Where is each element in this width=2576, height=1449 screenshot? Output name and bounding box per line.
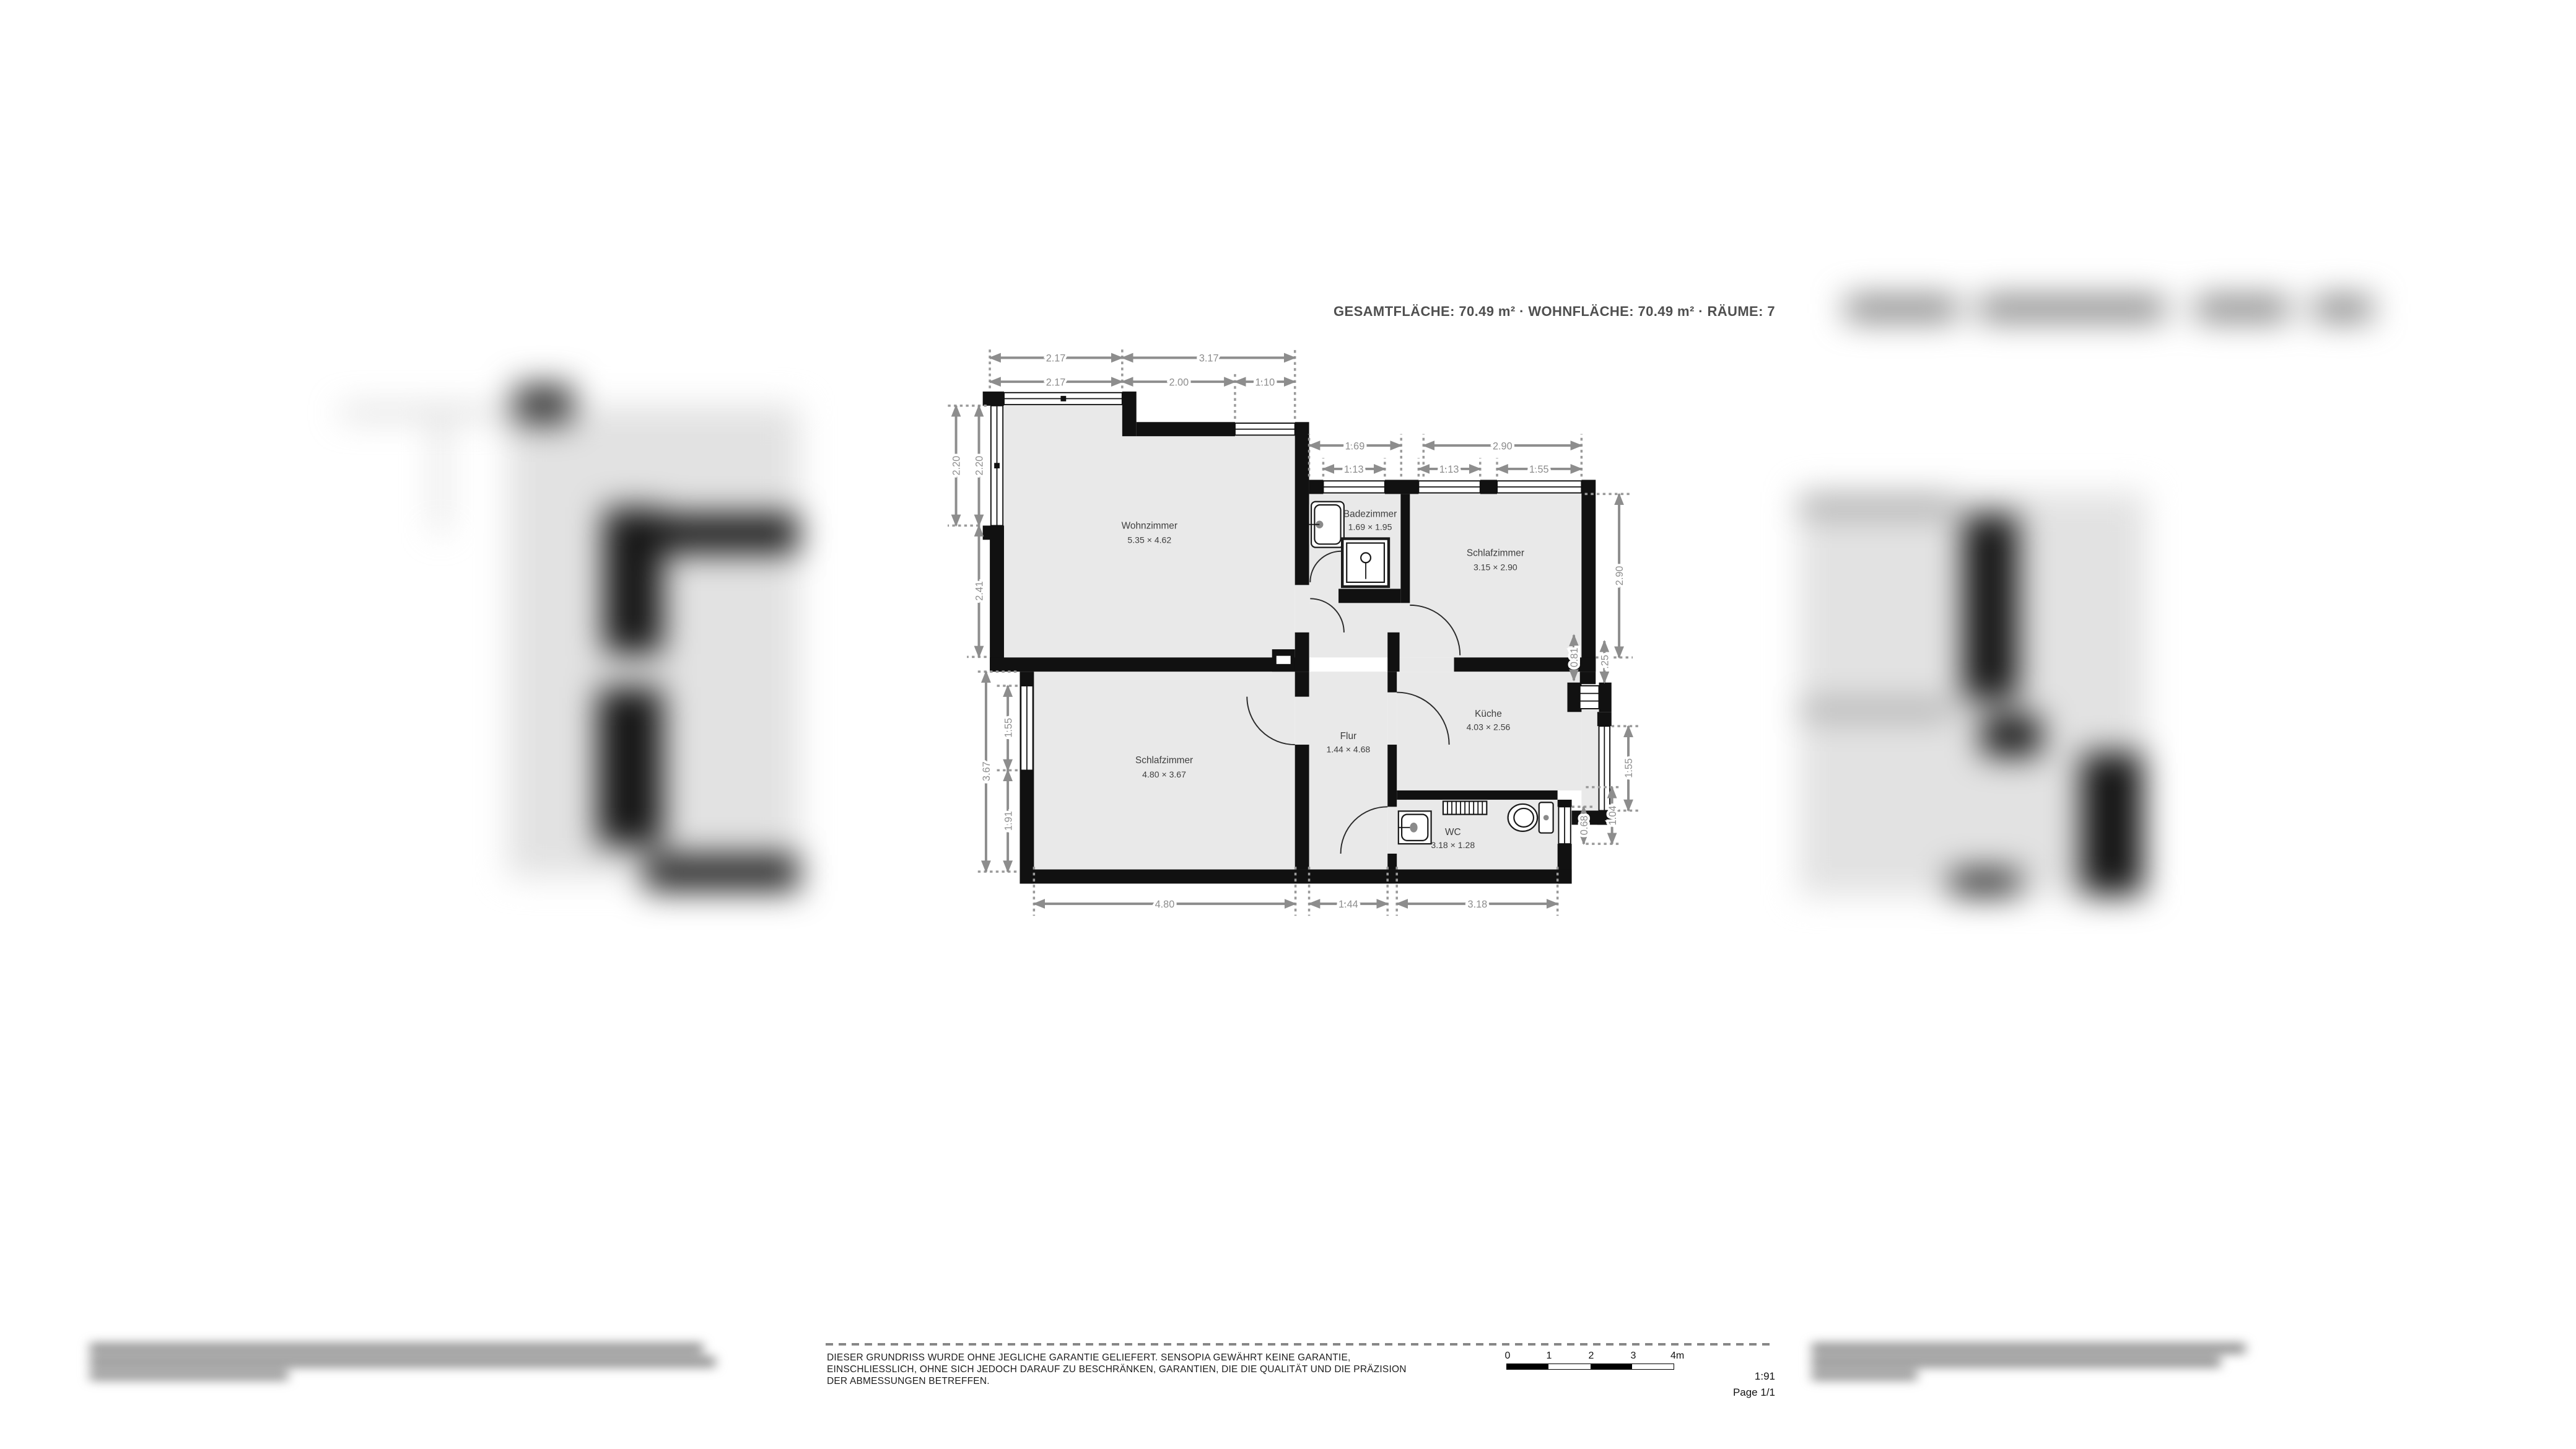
svg-text:1.13: 1.13 [1439,464,1459,475]
blur-shape [341,409,520,416]
svg-text:1.44: 1.44 [1338,899,1358,910]
scale-segment [1632,1364,1674,1369]
toilet-icon [1508,802,1553,833]
blur-shape [644,855,799,891]
blur-shape [657,514,799,553]
svg-text:5.35 × 4.62: 5.35 × 4.62 [1127,535,1171,545]
svg-text:Schlafzimmer: Schlafzimmer [1135,755,1193,766]
svg-text:2.17: 2.17 [1046,377,1066,388]
svg-text:Schlafzimmer: Schlafzimmer [1467,548,1524,559]
svg-text:1.13: 1.13 [1344,464,1364,475]
disclaimer-line: EINSCHLIESSLICH, OHNE SICH JEDOCH DARAUF… [827,1364,1407,1375]
blur-shape [1799,703,1951,717]
scale-tick-2: 2 [1589,1351,1594,1362]
area-summary: GESAMTFLÄCHE: 70.49 m² · WOHNFLÄCHE: 70.… [1334,304,1775,320]
scale-ratio: 1:91 [1755,1370,1775,1383]
svg-text:WC: WC [1445,827,1461,838]
svg-text:1.69: 1.69 [1345,440,1365,452]
blurred-page-preview-left [81,285,799,892]
svg-text:4.03 × 2.56: 4.03 × 2.56 [1467,722,1511,732]
svg-text:1.10: 1.10 [1255,377,1275,388]
wc-sink-icon [1399,811,1431,844]
svg-text:1.55: 1.55 [1623,758,1635,778]
blur-shape [1812,1358,2220,1366]
blurred-page-preview-right [1799,282,2425,895]
blur-shape [1963,514,2018,700]
blur-shape [604,508,663,654]
scale-segment [1507,1364,1548,1369]
blur-shape [1812,1372,1917,1379]
blur-shape [1799,499,1954,512]
disclaimer-line: DIESER GRUNDRISS WURDE OHNE JEGLICHE GAR… [827,1352,1407,1364]
scale-tick-4: 4m [1670,1351,1684,1362]
svg-text:1.55: 1.55 [1529,464,1549,475]
svg-text:Flur: Flur [1340,731,1356,742]
blur-shape [437,415,444,533]
blurred-footer-right [1812,1341,2276,1381]
disclaimer-text: DIESER GRUNDRISS WURDE OHNE JEGLICHE GAR… [827,1352,1407,1387]
svg-text:Badezimmer: Badezimmer [1343,509,1397,519]
svg-text:2.90: 2.90 [1493,440,1513,452]
blur-shape [1951,870,2019,895]
footer-divider [826,1343,1775,1346]
disclaimer-line: DER ABMESSUNGEN BETREFFEN. [827,1375,1407,1387]
blur-shape [1979,297,2165,320]
svg-text:3.15 × 2.90: 3.15 × 2.90 [1474,563,1517,572]
svg-text:2.20: 2.20 [974,456,985,476]
blur-shape [1846,297,1957,320]
svg-text:2.20: 2.20 [951,456,963,476]
svg-text:.25: .25 [1599,655,1610,669]
svg-text:Wohnzimmer: Wohnzimmer [1122,521,1177,532]
blur-shape [2196,297,2289,320]
svg-text:2.00: 2.00 [1169,377,1189,388]
page-indicator: Page 1/1 [1733,1386,1775,1399]
blur-shape [90,1358,715,1366]
svg-text:2.17: 2.17 [1046,353,1066,364]
blur-shape [1982,716,2041,756]
svg-text:4.80 × 3.67: 4.80 × 3.67 [1142,769,1186,779]
shower-icon [1342,539,1389,587]
svg-text:Küche: Küche [1475,709,1502,719]
svg-text:1.91: 1.91 [1003,811,1014,831]
blur-shape [598,688,663,846]
scale-tick-1: 1 [1547,1351,1552,1362]
blur-shape [1812,1344,2245,1352]
svg-text:3.67: 3.67 [981,761,992,781]
blur-shape [90,1344,703,1352]
wc-radiator-icon [1443,802,1487,815]
radiator-icon [1272,649,1295,672]
blur-shape [2313,297,2372,320]
svg-text:2.90: 2.90 [1614,566,1625,586]
svg-text:1.44 × 4.68: 1.44 × 4.68 [1327,744,1371,754]
scale-segment [1548,1364,1590,1369]
bathroom-sink-icon [1309,502,1344,548]
svg-text:3.18: 3.18 [1468,899,1488,910]
svg-text:2.41: 2.41 [974,581,985,601]
svg-text:1.04: 1.04 [1607,806,1618,826]
svg-text:3.17: 3.17 [1199,353,1219,364]
scale-segment [1591,1364,1632,1369]
scale-tick-3: 3 [1631,1351,1636,1362]
blurred-footer-left [87,1341,718,1381]
blur-shape [90,1372,288,1379]
scale-bar [1506,1364,1674,1370]
floorplan-drawing: Wohnzimmer 5.35 × 4.62 Badezimmer 1.69 ×… [948,328,1685,917]
svg-text:1.69 × 1.95: 1.69 × 1.95 [1348,522,1392,532]
scale-tick-0: 0 [1505,1351,1511,1362]
blur-shape [514,384,573,424]
svg-text:0.68: 0.68 [1579,815,1590,835]
svg-text:4.80: 4.80 [1155,899,1175,910]
svg-text:3.18 × 1.28: 3.18 × 1.28 [1431,840,1475,850]
blur-shape [2081,753,2143,895]
svg-text:0.81: 0.81 [1569,647,1580,667]
svg-text:1.55: 1.55 [1003,718,1014,738]
